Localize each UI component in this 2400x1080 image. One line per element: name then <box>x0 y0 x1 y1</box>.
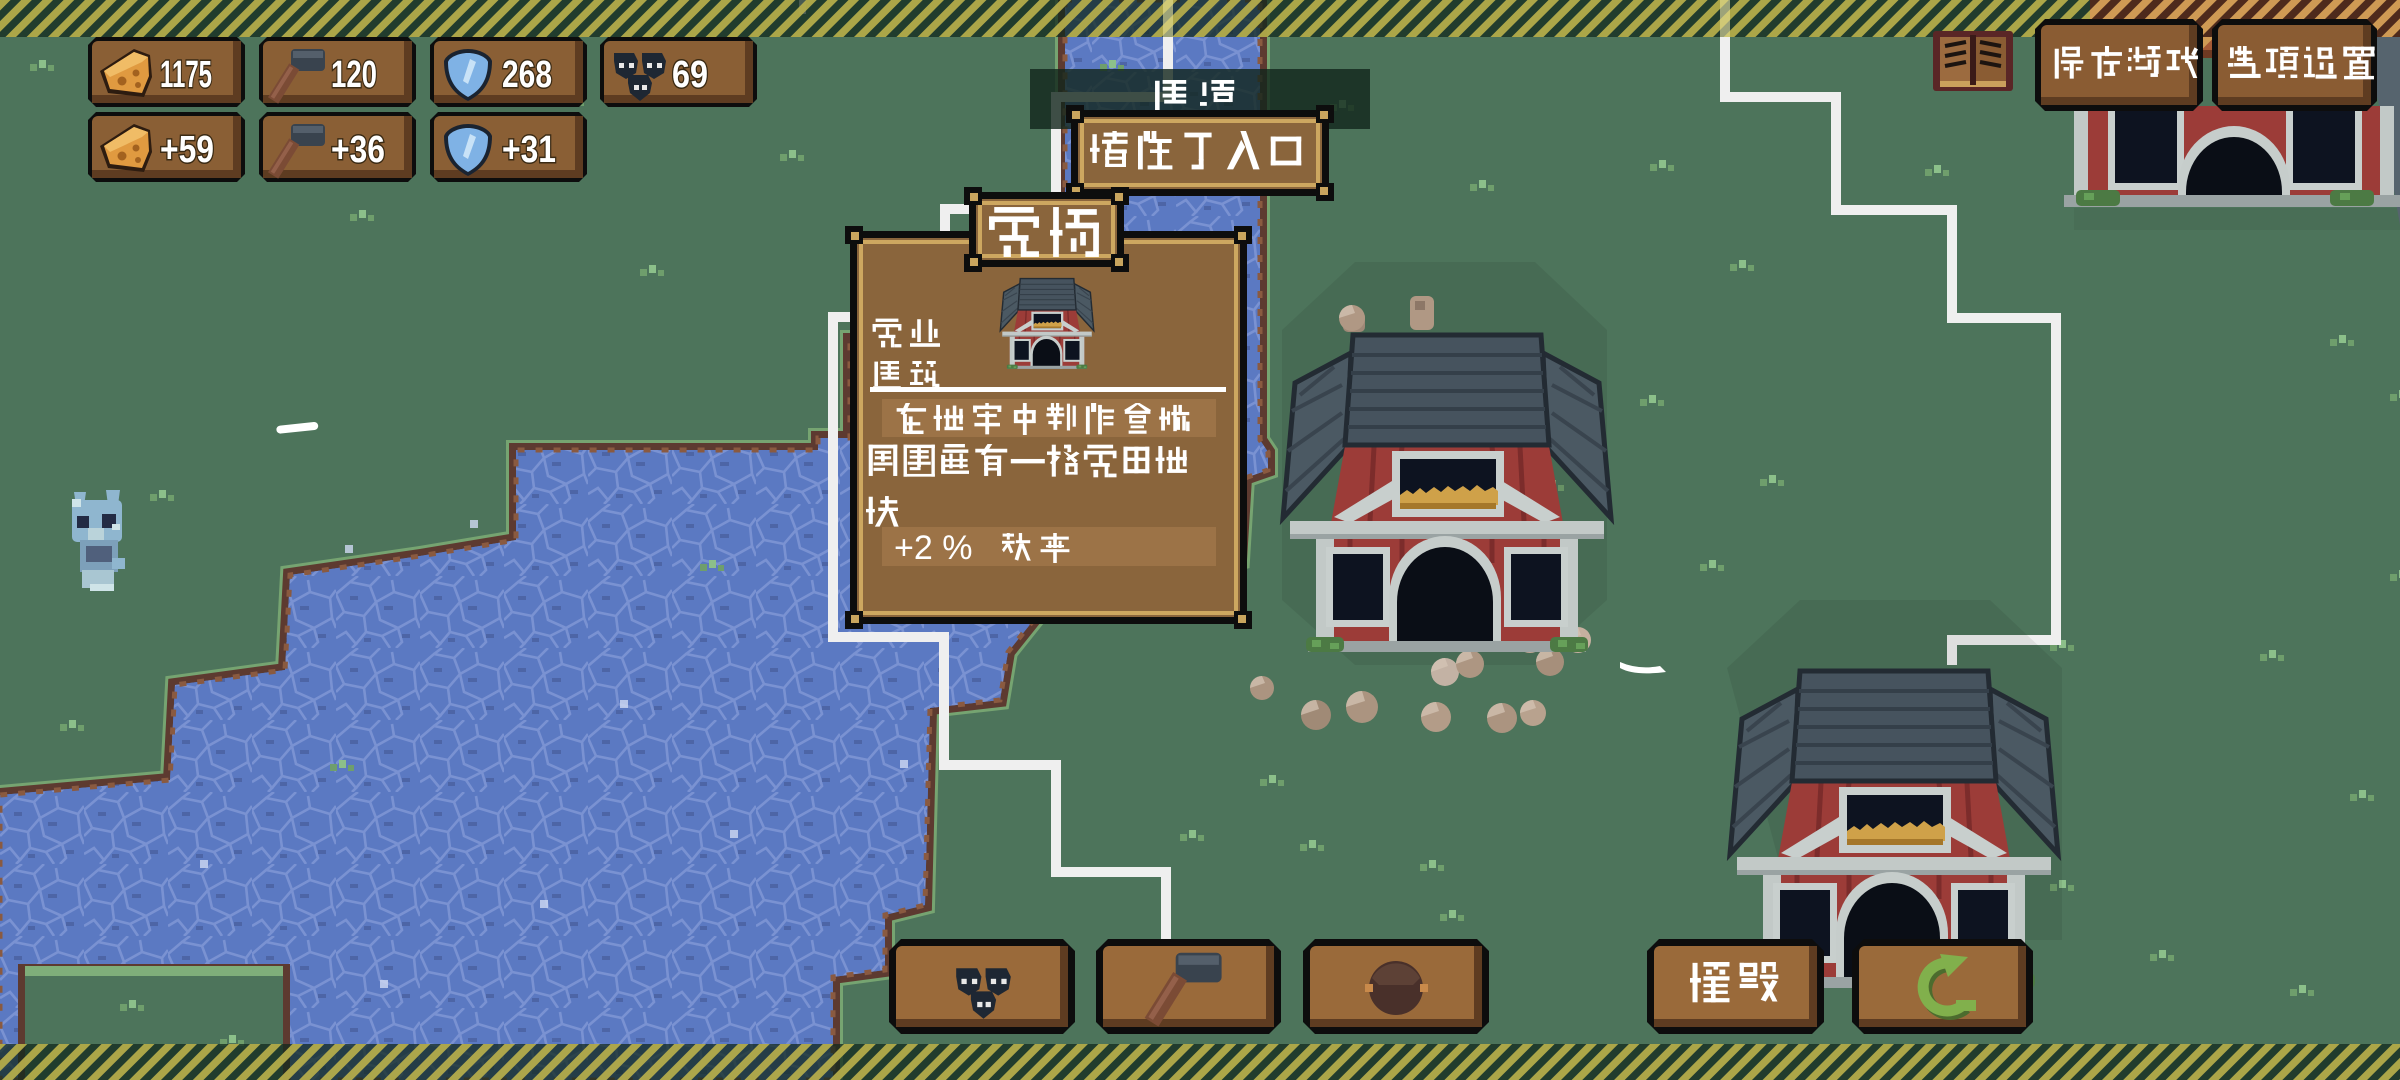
svg-text:+31: +31 <box>502 129 556 171</box>
svg-text:69: 69 <box>672 54 708 96</box>
svg-text:1175: 1175 <box>160 54 212 96</box>
svg-text:+36: +36 <box>331 129 385 171</box>
svg-text:268: 268 <box>502 54 552 96</box>
svg-text:+2 %: +2 % <box>894 529 972 567</box>
svg-text:+59: +59 <box>160 129 214 171</box>
svg-text:120: 120 <box>331 54 377 96</box>
